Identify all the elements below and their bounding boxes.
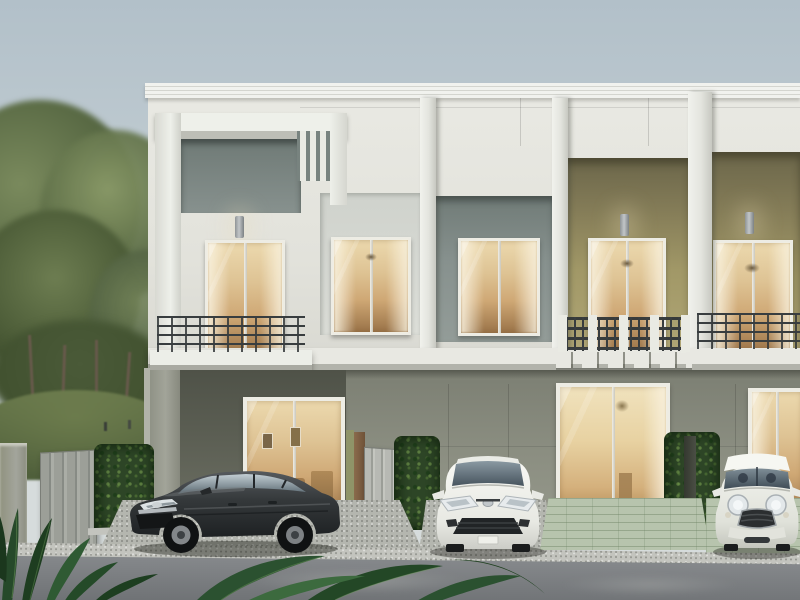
white-compact-sedan <box>426 446 552 562</box>
townhome-render-scene: Daytime front-elevation rendering of a m… <box>0 0 800 600</box>
white-mini-hatchback <box>710 447 800 561</box>
foreground-plant-center <box>185 546 545 600</box>
patio-tiles-unit2 <box>540 498 710 550</box>
foreground-plant-left <box>0 502 169 600</box>
road-wear-patch <box>560 574 740 596</box>
